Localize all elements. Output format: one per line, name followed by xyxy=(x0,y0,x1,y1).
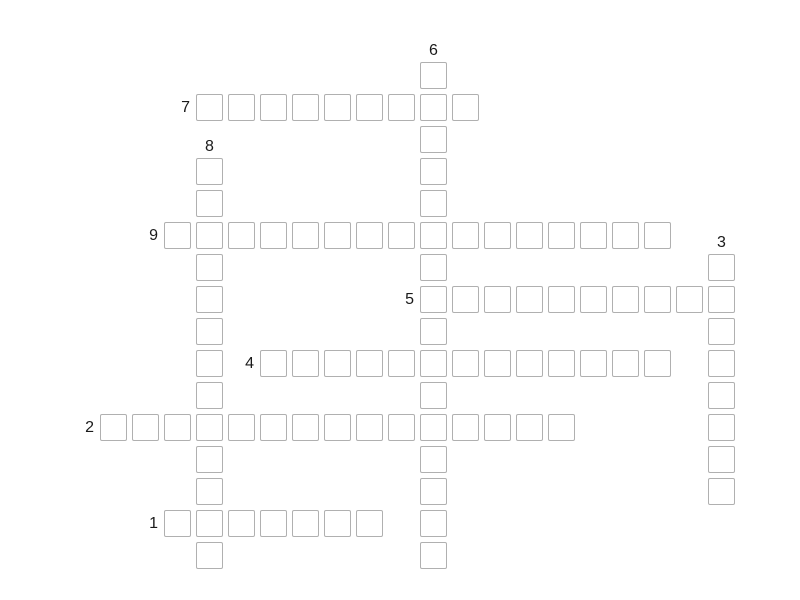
crossword-cell[interactable] xyxy=(196,414,223,441)
crossword-cell[interactable] xyxy=(644,222,671,249)
crossword-cell[interactable] xyxy=(196,94,223,121)
crossword-cell[interactable] xyxy=(388,94,415,121)
clue-number-6: 6 xyxy=(420,41,447,61)
crossword-cell[interactable] xyxy=(420,158,447,185)
crossword-cell[interactable] xyxy=(484,350,511,377)
crossword-cell[interactable] xyxy=(324,414,351,441)
crossword-cell[interactable] xyxy=(708,254,735,281)
crossword-cell[interactable] xyxy=(356,414,383,441)
crossword-cell[interactable] xyxy=(420,286,447,313)
clue-number-4: 4 xyxy=(234,350,254,377)
crossword-cell[interactable] xyxy=(452,286,479,313)
crossword-cell[interactable] xyxy=(388,414,415,441)
crossword-cell[interactable] xyxy=(292,510,319,537)
crossword-cell[interactable] xyxy=(644,286,671,313)
crossword-cell[interactable] xyxy=(196,254,223,281)
crossword-cell[interactable] xyxy=(420,94,447,121)
crossword-cell[interactable] xyxy=(548,350,575,377)
crossword-cell[interactable] xyxy=(196,350,223,377)
crossword-cell[interactable] xyxy=(516,350,543,377)
crossword-cell[interactable] xyxy=(228,510,255,537)
crossword-cell[interactable] xyxy=(484,222,511,249)
crossword-cell[interactable] xyxy=(708,382,735,409)
crossword-cell[interactable] xyxy=(420,510,447,537)
crossword-cell[interactable] xyxy=(420,62,447,89)
crossword-cell[interactable] xyxy=(356,222,383,249)
crossword-cell[interactable] xyxy=(164,510,191,537)
crossword-cell[interactable] xyxy=(708,286,735,313)
crossword-cell[interactable] xyxy=(196,222,223,249)
crossword-cell[interactable] xyxy=(356,94,383,121)
crossword-cell[interactable] xyxy=(708,478,735,505)
clue-number-9: 9 xyxy=(138,222,158,249)
crossword-cell[interactable] xyxy=(580,350,607,377)
crossword-cell[interactable] xyxy=(228,222,255,249)
crossword-cell[interactable] xyxy=(356,350,383,377)
crossword-cell[interactable] xyxy=(292,414,319,441)
crossword-cell[interactable] xyxy=(420,254,447,281)
crossword-cell[interactable] xyxy=(420,414,447,441)
crossword-cell[interactable] xyxy=(228,94,255,121)
crossword-cell[interactable] xyxy=(420,350,447,377)
crossword-cell[interactable] xyxy=(516,222,543,249)
crossword-cell[interactable] xyxy=(196,478,223,505)
crossword-cell[interactable] xyxy=(388,222,415,249)
crossword-cell[interactable] xyxy=(164,414,191,441)
crossword-cell[interactable] xyxy=(100,414,127,441)
crossword-cell[interactable] xyxy=(196,510,223,537)
crossword-cell[interactable] xyxy=(292,222,319,249)
crossword-cell[interactable] xyxy=(292,94,319,121)
crossword-cell[interactable] xyxy=(580,286,607,313)
crossword-cell[interactable] xyxy=(356,510,383,537)
crossword-cell[interactable] xyxy=(324,94,351,121)
clue-number-3: 3 xyxy=(708,233,735,253)
clue-number-8: 8 xyxy=(196,137,223,157)
crossword-cell[interactable] xyxy=(196,318,223,345)
crossword-cell[interactable] xyxy=(196,446,223,473)
crossword-cell[interactable] xyxy=(516,286,543,313)
crossword-cell[interactable] xyxy=(612,350,639,377)
crossword-cell[interactable] xyxy=(324,350,351,377)
crossword-cell[interactable] xyxy=(548,286,575,313)
crossword-cell[interactable] xyxy=(132,414,159,441)
crossword-cell[interactable] xyxy=(164,222,191,249)
crossword-cell[interactable] xyxy=(196,286,223,313)
crossword-cell[interactable] xyxy=(420,446,447,473)
crossword-cell[interactable] xyxy=(420,126,447,153)
crossword-cell[interactable] xyxy=(196,158,223,185)
crossword-cell[interactable] xyxy=(324,222,351,249)
clue-number-2: 2 xyxy=(74,414,94,441)
crossword-cell[interactable] xyxy=(580,222,607,249)
crossword-cell[interactable] xyxy=(484,286,511,313)
crossword-cell[interactable] xyxy=(420,318,447,345)
crossword-cell[interactable] xyxy=(420,222,447,249)
crossword-cell[interactable] xyxy=(612,222,639,249)
crossword-cell[interactable] xyxy=(452,350,479,377)
crossword-cell[interactable] xyxy=(708,318,735,345)
clue-number-1: 1 xyxy=(138,510,158,537)
crossword-cell[interactable] xyxy=(260,510,287,537)
crossword-cell[interactable] xyxy=(420,542,447,569)
crossword-cell[interactable] xyxy=(708,350,735,377)
crossword-cell[interactable] xyxy=(292,350,319,377)
crossword-cell[interactable] xyxy=(644,350,671,377)
crossword-cell[interactable] xyxy=(420,478,447,505)
crossword-cell[interactable] xyxy=(484,414,511,441)
clue-number-5: 5 xyxy=(394,286,414,313)
crossword-cell[interactable] xyxy=(452,94,479,121)
crossword-grid: 123456789 xyxy=(0,0,800,600)
crossword-cell[interactable] xyxy=(228,414,255,441)
crossword-cell[interactable] xyxy=(548,222,575,249)
crossword-cell[interactable] xyxy=(708,446,735,473)
crossword-cell[interactable] xyxy=(516,414,543,441)
crossword-cell[interactable] xyxy=(260,222,287,249)
crossword-cell[interactable] xyxy=(196,382,223,409)
clue-number-7: 7 xyxy=(170,94,190,121)
crossword-cell[interactable] xyxy=(420,382,447,409)
crossword-cell[interactable] xyxy=(260,414,287,441)
crossword-cell[interactable] xyxy=(548,414,575,441)
crossword-cell[interactable] xyxy=(452,414,479,441)
crossword-cell[interactable] xyxy=(676,286,703,313)
crossword-cell[interactable] xyxy=(452,222,479,249)
crossword-cell[interactable] xyxy=(196,542,223,569)
crossword-cell[interactable] xyxy=(612,286,639,313)
crossword-cell[interactable] xyxy=(708,414,735,441)
crossword-cell[interactable] xyxy=(388,350,415,377)
crossword-cell[interactable] xyxy=(196,190,223,217)
crossword-cell[interactable] xyxy=(420,190,447,217)
crossword-cell[interactable] xyxy=(324,510,351,537)
crossword-cell[interactable] xyxy=(260,350,287,377)
crossword-cell[interactable] xyxy=(260,94,287,121)
